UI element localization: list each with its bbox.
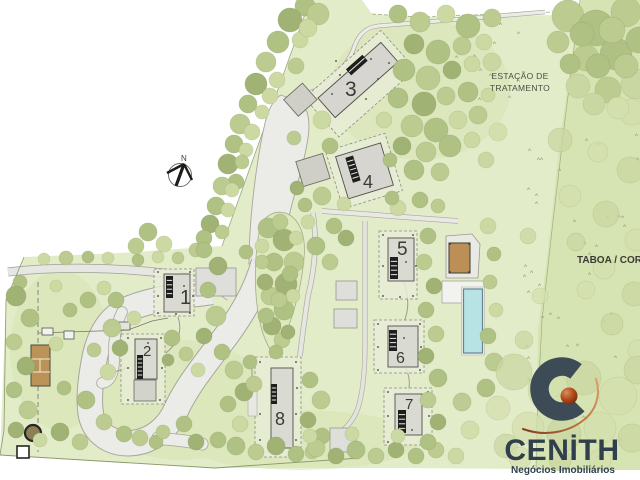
svg-text:CENİTH: CENİTH: [504, 434, 619, 467]
svg-text:2: 2: [143, 343, 151, 360]
svg-text:N: N: [181, 154, 187, 163]
svg-text:Negócios Imobiliários: Negócios Imobiliários: [511, 465, 615, 476]
svg-text:7: 7: [405, 396, 413, 413]
svg-text:8: 8: [275, 409, 285, 429]
svg-text:5: 5: [397, 239, 408, 260]
svg-text:ESTAÇÃO DE: ESTAÇÃO DE: [491, 71, 548, 81]
svg-text:1: 1: [180, 287, 191, 309]
svg-text:6: 6: [396, 350, 405, 367]
svg-text:TRATAMENTO: TRATAMENTO: [490, 83, 550, 93]
svg-text:TABOA / CORRE: TABOA / CORRE: [577, 255, 640, 266]
svg-text:4: 4: [363, 172, 373, 192]
svg-text:3: 3: [345, 78, 357, 101]
